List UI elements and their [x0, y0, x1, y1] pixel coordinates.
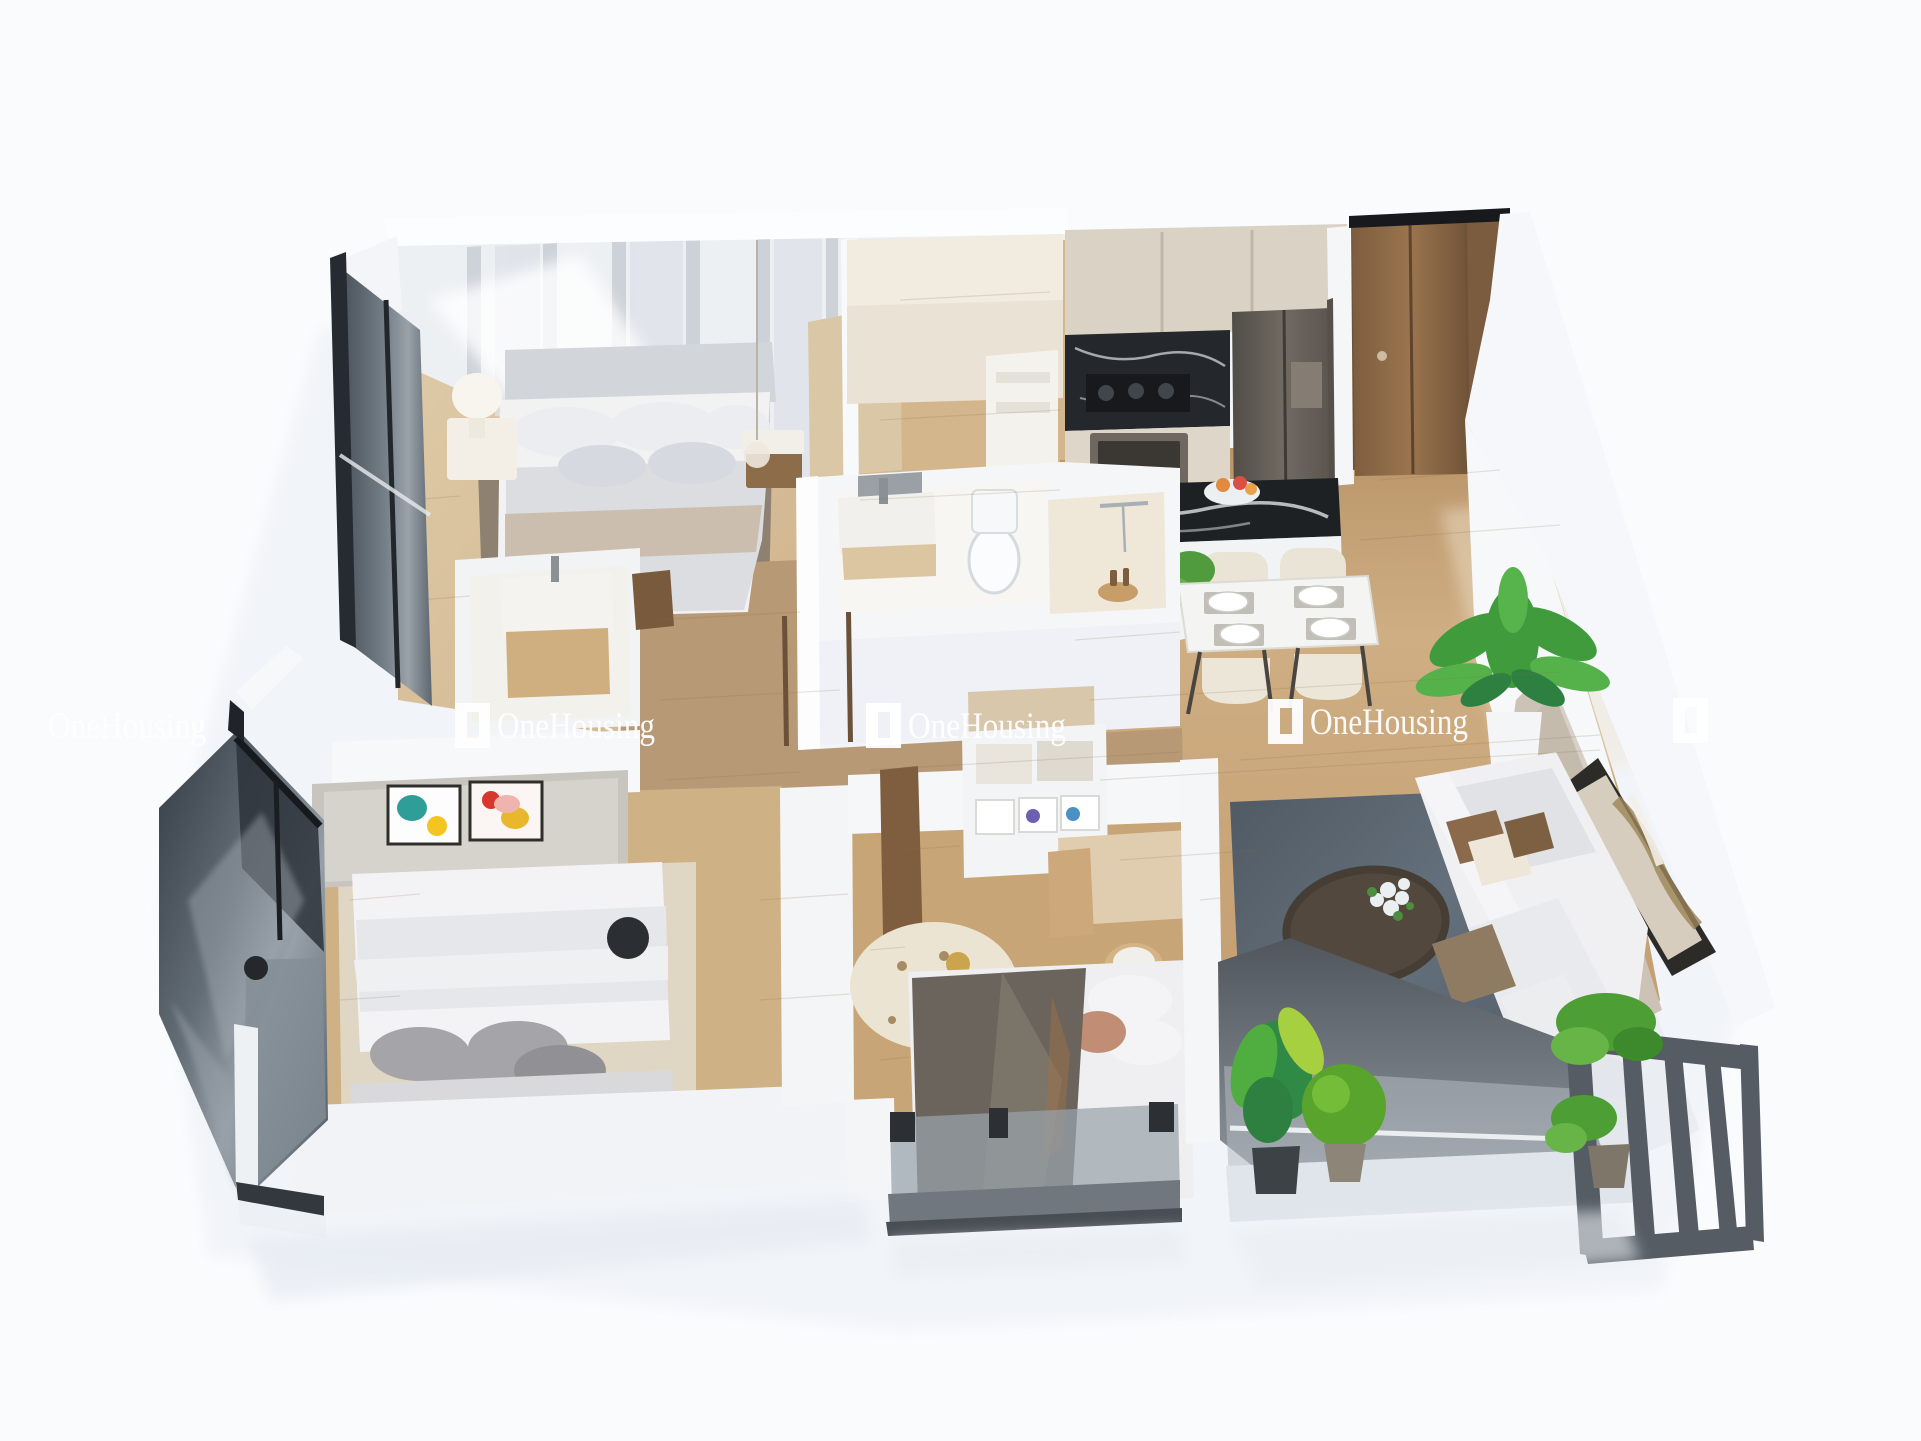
svg-text:OneHousing: OneHousing [1310, 702, 1468, 743]
svg-text:OneHousing: OneHousing [48, 706, 206, 747]
svg-text:OneHousing: OneHousing [497, 706, 655, 747]
svg-text:OneHousing: OneHousing [908, 706, 1066, 747]
